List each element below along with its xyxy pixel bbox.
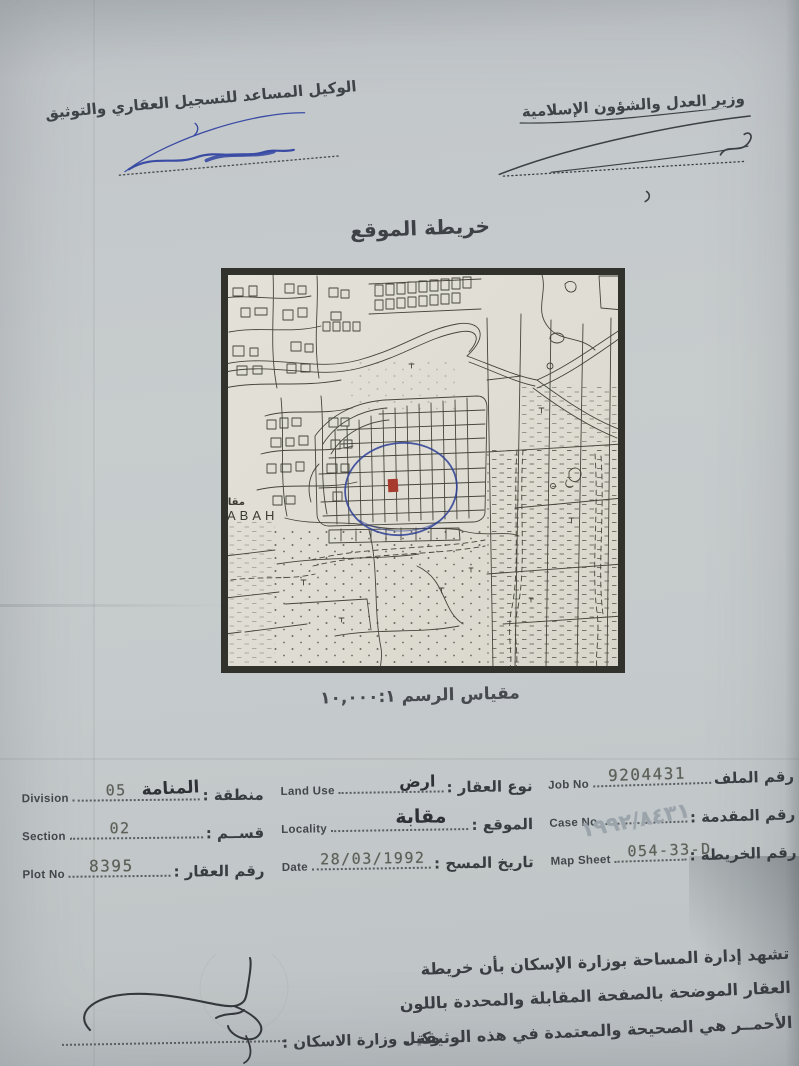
field-value-line: ارض (339, 789, 444, 794)
paper-crease (0, 604, 230, 607)
field-land-use: Land Use ارض نوع العقار : (280, 758, 533, 800)
details-column-middle: Land Use ارض نوع العقار : Locality مقابة… (280, 758, 534, 876)
field-value-line: ١٩٩٢/٨٤٣١ (602, 820, 688, 826)
field-label-ar: الموقع : (471, 815, 533, 835)
map-scale: مقياس الرسم ١٠,٠٠٠:١ (285, 682, 555, 709)
field-value-line: 05 المنامة (73, 797, 200, 801)
field-value-typed: 8395 (89, 858, 134, 874)
field-value-line: 02 (70, 835, 203, 839)
field-label-ar: نوع العقار : (446, 777, 532, 797)
field-label-ar: منطقة : (202, 786, 263, 806)
field-value-typed: 9204431 (608, 766, 686, 784)
paper-crease (93, 0, 95, 1066)
field-value-line: 28/03/1992 (312, 866, 431, 871)
field-label-en: Division (22, 793, 69, 807)
field-value-written: المنامة (141, 779, 199, 799)
housing-undersecretary-signature (66, 954, 316, 1066)
field-value-written: ارض (399, 774, 435, 791)
field-label-en: Locality (281, 823, 327, 838)
map-village-label-latin: ABAH (227, 508, 278, 523)
field-value-written: مقابة (395, 807, 447, 827)
field-value-typed: 054-33-D (627, 842, 712, 860)
registrar-signature-block: الوكيل المساعد للتسجيل العقاري والتوثيق (105, 77, 364, 187)
field-label-en: Land Use (280, 785, 334, 800)
field-locality: Locality مقابة الموقع : (281, 796, 534, 838)
field-label-en: Date (282, 862, 308, 876)
plot-marker (388, 479, 399, 493)
field-value-line: 8395 (69, 874, 171, 878)
site-map-image: ABAH مقابة (221, 268, 625, 673)
attestation-text: تشهد إدارة المساحة بوزارة الإسكان بأن خر… (457, 937, 793, 1055)
field-section: Section 02 قســم : (22, 805, 264, 846)
details-column-left: Division 05 المنامة منطقة : Section 02 ق… (21, 767, 264, 884)
photo-edge-shadow (785, 0, 799, 1066)
field-value-typed: 05 (106, 783, 127, 798)
field-value-typed: 02 (110, 821, 131, 836)
field-value-typed: 28/03/1992 (320, 851, 426, 868)
field-label-ar: قســم : (206, 824, 265, 844)
field-value-line: 054-33-D (615, 858, 687, 863)
field-label-en: Section (22, 831, 66, 845)
map-title: خريطة الموقع (310, 212, 531, 244)
site-map: ABAH مقابة (221, 268, 625, 673)
field-division: Division 05 المنامة منطقة : (21, 767, 263, 808)
field-label-en: Map Sheet (550, 854, 611, 870)
minister-signature (484, 105, 789, 213)
field-label-en: Plot No (22, 869, 65, 883)
field-map-sheet: Map Sheet 054-33-D رقم الخريطة : (550, 824, 797, 870)
details-column-right: Job No 9204431 رقم الملف Case No ١٩٩٢/٨٤… (547, 748, 796, 870)
scanned-survey-document: الوكيل المساعد للتسجيل العقاري والتوثيق … (0, 0, 799, 1066)
field-label-ar: رقم العقار : (173, 862, 264, 882)
field-label-ar: رقم الملف (714, 767, 795, 789)
field-value-line: 9204431 (593, 781, 711, 788)
field-plot-no: Plot No 8395 رقم العقار : (22, 843, 264, 884)
field-label-en: Job No (548, 779, 589, 794)
field-date: Date 28/03/1992 تاريخ المسح : (281, 834, 534, 876)
field-value-line: مقابة (331, 827, 469, 832)
field-label-ar: تاريخ المسح : (434, 853, 534, 874)
minister-signature-block: وزير العدل والشؤون الإسلامية (483, 87, 789, 213)
